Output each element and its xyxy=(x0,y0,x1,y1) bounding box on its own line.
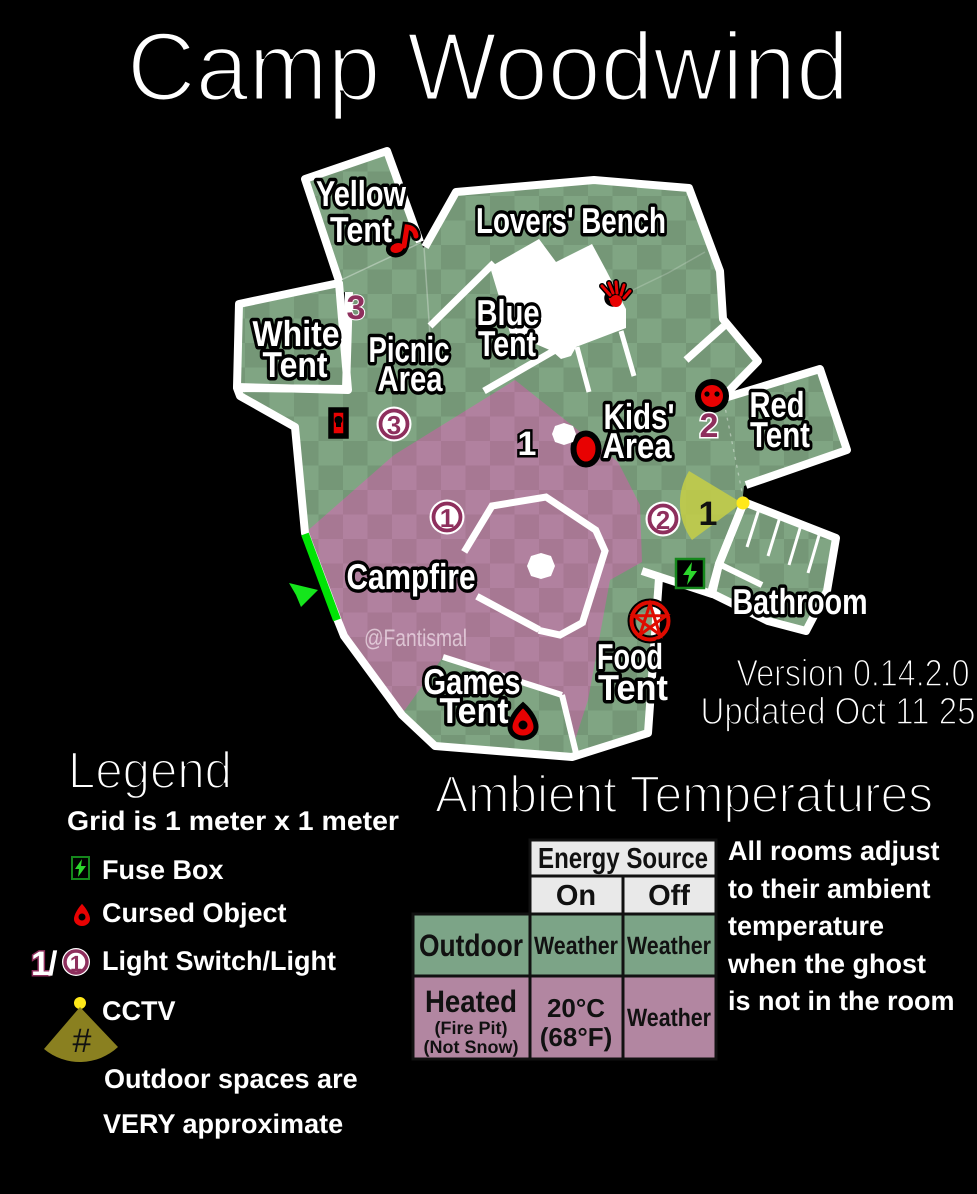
svg-text:VERY approximate: VERY approximate xyxy=(103,1109,343,1139)
svg-text:Tent: Tent xyxy=(750,414,810,455)
svg-text:Camp Woodwind: Camp Woodwind xyxy=(127,12,849,121)
svg-text:Tent: Tent xyxy=(263,344,328,385)
svg-text:2: 2 xyxy=(656,505,670,535)
svg-text:1: 1 xyxy=(70,951,82,976)
svg-text:All rooms adjust: All rooms adjust xyxy=(728,836,940,866)
svg-text:Bathroom: Bathroom xyxy=(733,581,868,622)
svg-text:Heated: Heated xyxy=(425,984,517,1019)
svg-text:Version 0.14.2.0: Version 0.14.2.0 xyxy=(737,653,970,695)
svg-text:Light Switch/Light: Light Switch/Light xyxy=(102,946,336,976)
svg-text:3: 3 xyxy=(347,289,366,327)
svg-text:Lovers' Bench: Lovers' Bench xyxy=(476,200,666,241)
svg-text:Weather: Weather xyxy=(627,1004,711,1032)
svg-text:#: # xyxy=(73,1022,92,1060)
svg-text:2: 2 xyxy=(700,407,719,445)
svg-text:Energy Source: Energy Source xyxy=(538,843,708,875)
svg-text:Off: Off xyxy=(648,880,690,912)
svg-text:Yellow: Yellow xyxy=(316,173,407,214)
svg-text:Cursed Object: Cursed Object xyxy=(102,898,287,928)
svg-text:Tent: Tent xyxy=(440,690,509,731)
svg-text:3: 3 xyxy=(387,410,401,440)
svg-text:/: / xyxy=(48,945,58,983)
svg-text:Grid is 1 meter x 1 meter: Grid is 1 meter x 1 meter xyxy=(67,806,400,836)
svg-text:temperature: temperature xyxy=(728,911,884,941)
svg-text:Weather: Weather xyxy=(534,932,618,960)
svg-text:to their ambient: to their ambient xyxy=(728,874,931,904)
svg-text:Campfire: Campfire xyxy=(347,556,476,597)
svg-text:@Fantismal: @Fantismal xyxy=(364,625,467,652)
svg-text:Tent: Tent xyxy=(478,323,536,364)
svg-text:On: On xyxy=(556,880,596,912)
svg-text:1: 1 xyxy=(699,495,718,533)
svg-text:Area: Area xyxy=(603,425,673,466)
svg-text:(Not Snow): (Not Snow) xyxy=(424,1037,519,1057)
svg-text:Weather: Weather xyxy=(627,932,711,960)
svg-text:Updated Oct 11 25: Updated Oct 11 25 xyxy=(701,691,976,733)
svg-text:20°C: 20°C xyxy=(547,993,605,1023)
svg-text:Tent: Tent xyxy=(598,667,668,708)
svg-text:1: 1 xyxy=(440,503,454,533)
svg-text:(68°F): (68°F) xyxy=(540,1022,613,1052)
svg-text:Area: Area xyxy=(378,358,444,399)
svg-text:Outdoor spaces are: Outdoor spaces are xyxy=(104,1064,358,1094)
svg-text:Tent: Tent xyxy=(330,209,392,250)
svg-text:CCTV: CCTV xyxy=(102,996,176,1026)
svg-text:Ambient Temperatures: Ambient Temperatures xyxy=(435,766,933,824)
svg-text:1: 1 xyxy=(518,425,537,463)
svg-text:Outdoor: Outdoor xyxy=(419,928,523,963)
svg-text:Legend: Legend xyxy=(68,742,232,800)
svg-text:is not in the room: is not in the room xyxy=(728,986,955,1016)
svg-text:Fuse Box: Fuse Box xyxy=(102,855,224,885)
svg-text:when the ghost: when the ghost xyxy=(727,949,926,979)
svg-text:(Fire Pit): (Fire Pit) xyxy=(434,1018,507,1038)
